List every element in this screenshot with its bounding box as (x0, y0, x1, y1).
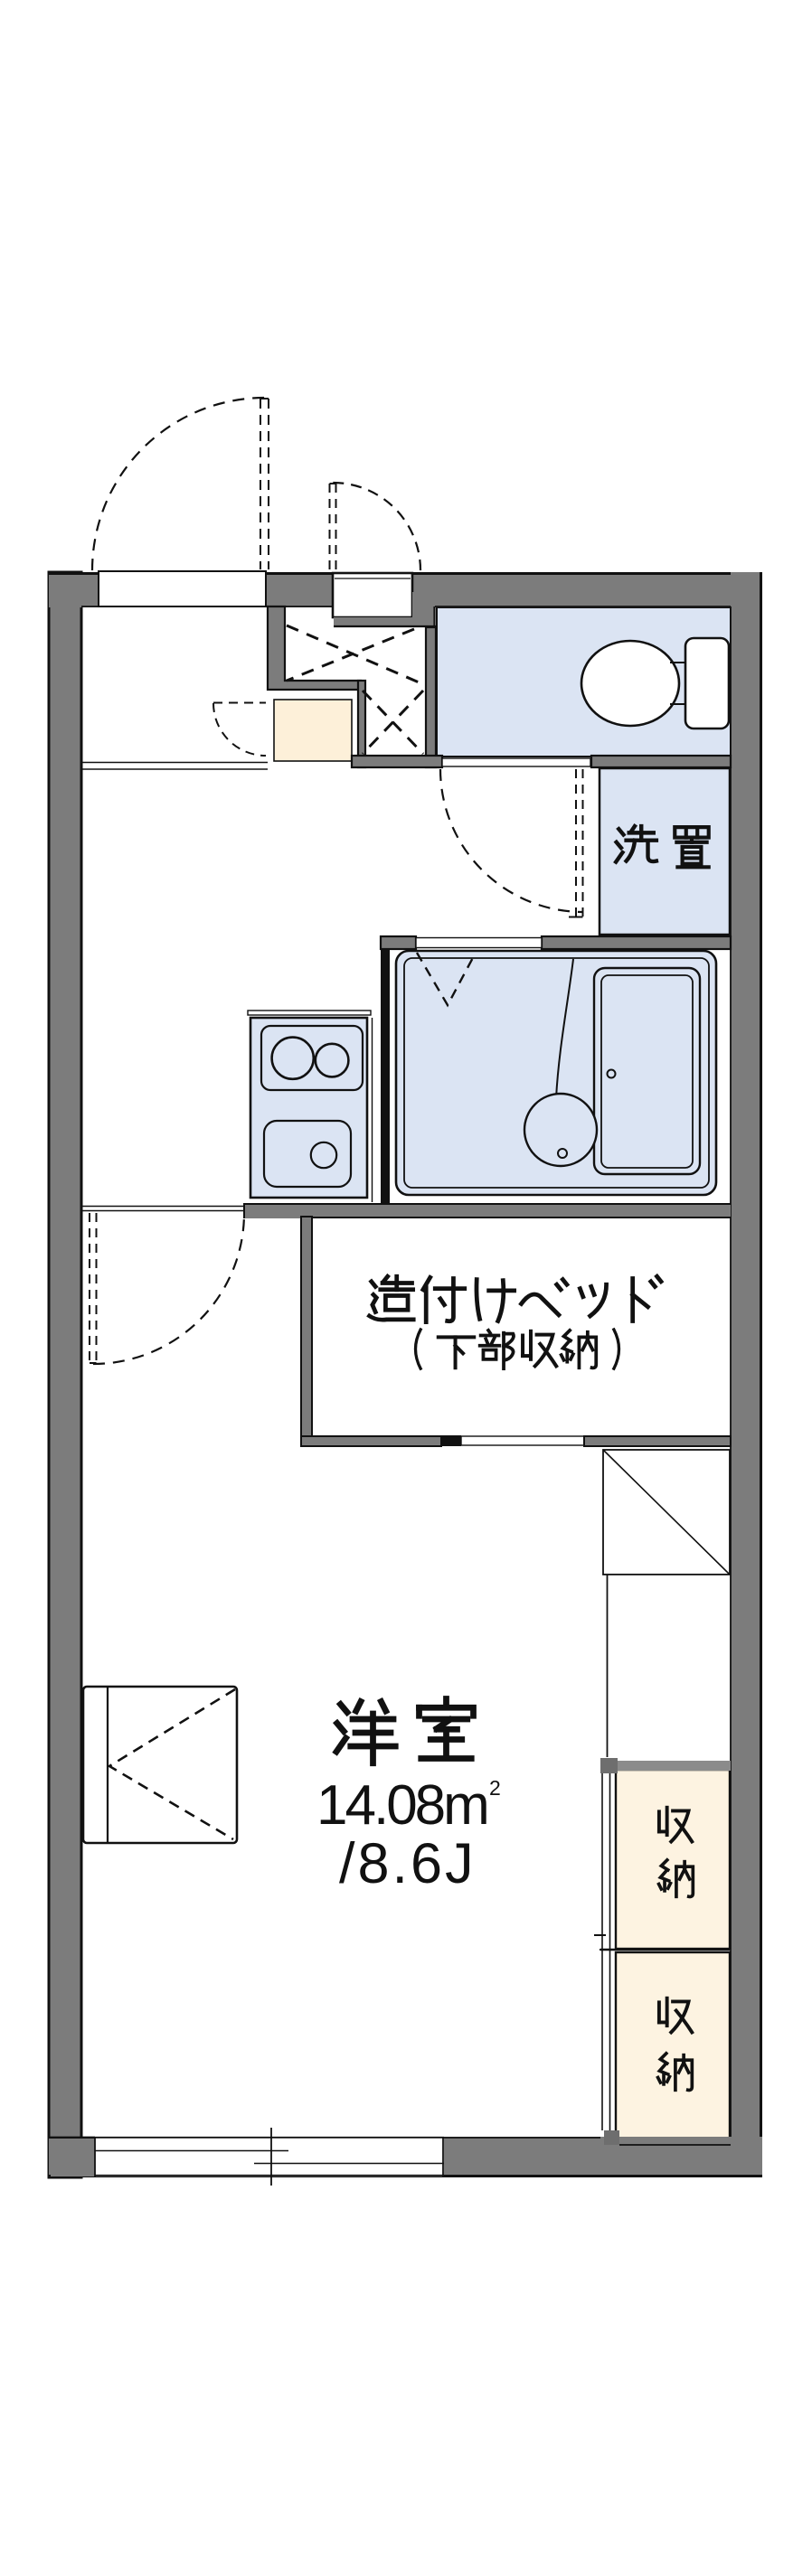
svg-text:2: 2 (489, 1776, 501, 1800)
svg-text:/8.6J: /8.6J (339, 1832, 477, 1895)
svg-text:14.08m: 14.08m (316, 1774, 487, 1837)
